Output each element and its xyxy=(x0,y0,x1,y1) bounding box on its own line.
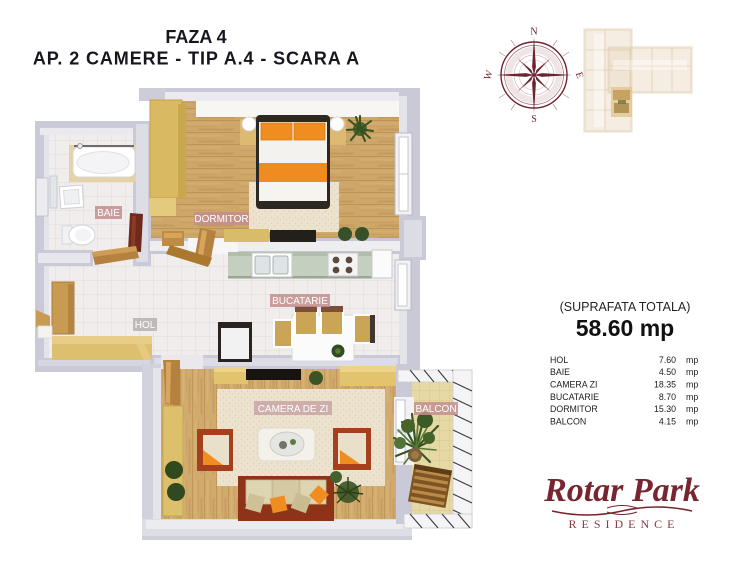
svg-text:BALCON: BALCON xyxy=(550,417,586,427)
svg-text:DORMITOR: DORMITOR xyxy=(550,404,598,414)
svg-text:mp: mp xyxy=(686,355,698,365)
svg-text:HOL: HOL xyxy=(550,355,568,365)
svg-text:4.15: 4.15 xyxy=(659,417,676,427)
svg-text:Rotar Park: Rotar Park xyxy=(543,472,700,509)
svg-text:mp: mp xyxy=(686,417,698,427)
svg-text:7.60: 7.60 xyxy=(659,355,676,365)
svg-text:58.60 mp: 58.60 mp xyxy=(576,315,674,341)
svg-text:15.30: 15.30 xyxy=(654,404,676,414)
svg-text:BALCON: BALCON xyxy=(415,404,456,415)
svg-text:BUCATARIE: BUCATARIE xyxy=(550,392,599,402)
svg-text:N: N xyxy=(530,27,537,38)
svg-text:BUCATARIE: BUCATARIE xyxy=(272,296,328,307)
svg-text:BAIE: BAIE xyxy=(550,367,570,377)
svg-text:AP. 2 CAMERE - TIP A.4 - SCARA: AP. 2 CAMERE - TIP A.4 - SCARA A xyxy=(33,49,360,69)
svg-text:CAMERA DE ZI: CAMERA DE ZI xyxy=(258,404,329,415)
svg-text:RESIDENCE: RESIDENCE xyxy=(569,517,680,531)
svg-text:HOL: HOL xyxy=(135,320,156,331)
svg-text:mp: mp xyxy=(686,392,698,402)
svg-text:S: S xyxy=(531,114,537,125)
svg-text:DORMITOR: DORMITOR xyxy=(194,214,248,225)
svg-text:BAIE: BAIE xyxy=(97,208,120,219)
svg-text:18.35: 18.35 xyxy=(654,380,676,390)
svg-text:mp: mp xyxy=(686,404,698,414)
svg-text:mp: mp xyxy=(686,367,698,377)
svg-text:8.70: 8.70 xyxy=(659,392,676,402)
svg-text:mp: mp xyxy=(686,380,698,390)
svg-text:FAZA 4: FAZA 4 xyxy=(165,27,226,47)
svg-text:(SUPRAFATA TOTALA): (SUPRAFATA TOTALA) xyxy=(560,300,691,314)
svg-text:4.50: 4.50 xyxy=(659,367,676,377)
svg-text:CAMERA ZI: CAMERA ZI xyxy=(550,380,597,390)
